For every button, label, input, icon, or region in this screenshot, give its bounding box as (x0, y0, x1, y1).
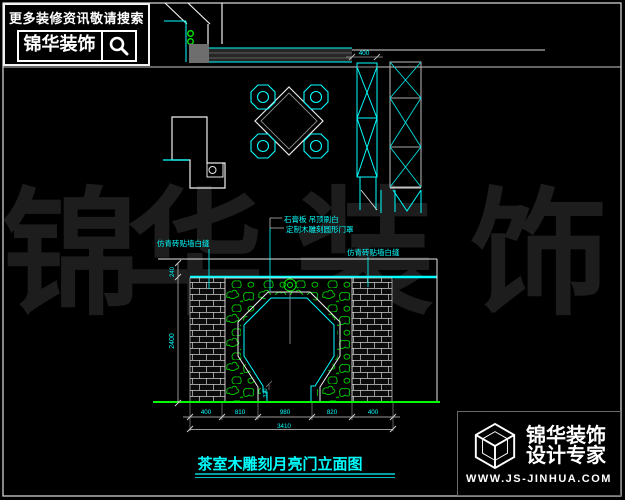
drawing-title-block: 茶室木雕刻月亮门立面图 (195, 455, 395, 478)
hinge-icon (188, 39, 194, 45)
elev-brick-pier-right (352, 278, 392, 402)
annotation-bracket (270, 218, 284, 228)
plan-counter (163, 117, 225, 188)
annotation-brick-left: 仿青砖贴墙白缝 (157, 238, 210, 248)
brand-name: 锦华装饰 (526, 426, 606, 446)
dim-segment: 980 (280, 409, 291, 416)
chair (251, 85, 275, 109)
plan-cabinet-narrow-diag (361, 190, 377, 210)
elev-brick-pier-left (190, 278, 225, 402)
elev-bottom-dims: 400 810 980 820 400 3410 (183, 403, 400, 432)
search-promo-logo: 更多装修资讯敬请搜索 锦华装饰 (3, 3, 150, 66)
chair (251, 134, 275, 158)
brand-slogan: 设计专家 (526, 446, 606, 466)
brand-website: WWW.JS-JINHUA.COM (466, 473, 612, 485)
moon-gate-elevation: 石膏板 吊顶刷白 定制木雕刻圆形门罩 仿青砖贴墙白缝 仿青砖贴墙白缝 240 2… (153, 214, 440, 432)
cad-drawing-sheet: 锦 华 装 饰 (0, 0, 625, 500)
cube-logo-icon (472, 422, 518, 470)
plan-dim-label: 400 (359, 50, 370, 57)
annotation-ceiling: 石膏板 吊顶刷白 (284, 214, 339, 224)
plan-cabinet-wide (390, 62, 421, 187)
drawing-title: 茶室木雕刻月亮门立面图 (197, 455, 362, 473)
dim-foot: 320 (263, 388, 269, 397)
plan-cabinet-wide-base (381, 188, 421, 213)
dim-top: 240 (170, 266, 176, 277)
dim-height: 2400 (169, 333, 176, 349)
search-tagline: 更多装修资讯敬请搜索 (9, 8, 144, 27)
search-brand-box: 锦华装饰 (17, 30, 137, 62)
brand-logo-block: 锦华装饰 设计专家 WWW.JS-JINHUA.COM (457, 411, 621, 496)
chair (304, 85, 328, 109)
elev-vertical-dims: 240 2400 (169, 260, 181, 406)
plan-tea-table (255, 87, 323, 155)
plan-cyan-wall-edge (164, 21, 186, 62)
dim-total: 3410 (277, 423, 291, 430)
dim-segment: 810 (235, 409, 246, 416)
search-brand-name: 锦华装饰 (19, 32, 101, 60)
plan-column (189, 44, 209, 63)
dim-segment: 400 (201, 409, 212, 416)
plan-cabinet-narrow (357, 63, 377, 210)
search-icon (103, 32, 135, 60)
plan-wall-fill (209, 48, 352, 62)
chair (304, 134, 328, 158)
floor-plan: 400 (163, 3, 545, 213)
annotation-brick-right: 仿青砖贴墙白缝 (347, 247, 400, 257)
dim-segment: 820 (327, 409, 338, 416)
dim-segment: 400 (368, 409, 379, 416)
annotation-gate: 定制木雕刻圆形门罩 (286, 224, 354, 234)
hinge-icon (188, 31, 194, 37)
